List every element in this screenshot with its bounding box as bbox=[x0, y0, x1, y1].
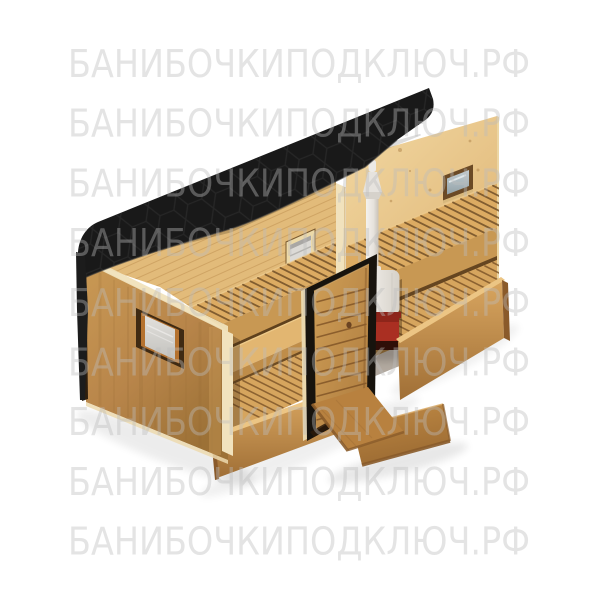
watermark-text-row: БАНИБОЧКИПОДКЛЮЧ.РФ bbox=[68, 281, 530, 325]
watermark-text-row: БАНИБОЧКИПОДКЛЮЧ.РФ bbox=[68, 102, 530, 146]
watermark-text-row: БАНИБОЧКИПОДКЛЮЧ.РФ bbox=[68, 221, 530, 265]
watermark-text-row: БАНИБОЧКИПОДКЛЮЧ.РФ bbox=[68, 460, 530, 504]
watermark-text-row: БАНИБОЧКИПОДКЛЮЧ.РФ bbox=[68, 400, 530, 444]
watermark-text-row: БАНИБОЧКИПОДКЛЮЧ.РФ bbox=[68, 520, 530, 564]
watermark: БАНИБОЧКИПОДКЛЮЧ.РФБАНИБОЧКИПОДКЛЮЧ.РФБА… bbox=[68, 42, 530, 564]
watermark-text-row: БАНИБОЧКИПОДКЛЮЧ.РФ bbox=[68, 42, 530, 86]
sauna-cutaway-render: БАНИБОЧКИПОДКЛЮЧ.РФБАНИБОЧКИПОДКЛЮЧ.РФБА… bbox=[0, 0, 600, 600]
render-canvas: БАНИБОЧКИПОДКЛЮЧ.РФБАНИБОЧКИПОДКЛЮЧ.РФБА… bbox=[0, 0, 600, 600]
watermark-text-row: БАНИБОЧКИПОДКЛЮЧ.РФ bbox=[68, 341, 530, 385]
watermark-text-row: БАНИБОЧКИПОДКЛЮЧ.РФ bbox=[68, 161, 530, 205]
